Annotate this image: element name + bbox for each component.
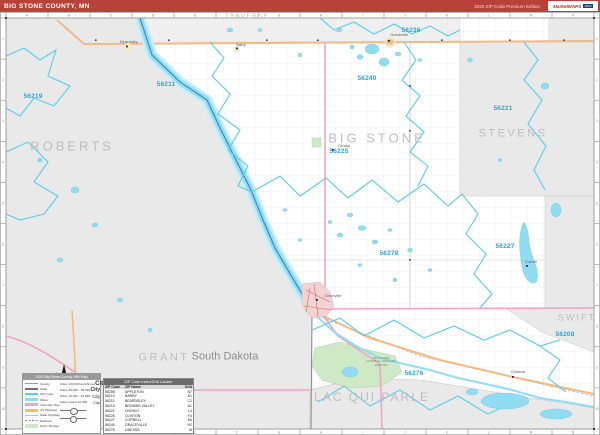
grid-ref-label: L — [488, 13, 490, 17]
legend-swatch — [25, 424, 38, 428]
zip-label: 56276 — [404, 371, 423, 378]
county-label: TRAVERSE — [225, 14, 269, 20]
grid-ref-label: E — [194, 13, 196, 17]
us-highway-sample-row — [60, 407, 100, 413]
grid-ref-label: D — [152, 13, 155, 17]
brand-badge: 2020 — [583, 4, 593, 8]
legend-swatch — [25, 393, 38, 395]
zip-label: 56278 — [379, 251, 398, 258]
grid-ref-label: K — [446, 431, 449, 435]
town-label: Odessa — [511, 370, 525, 374]
grid-ref-label: 4 — [2, 160, 4, 164]
grid-ref-label: 3 — [2, 119, 4, 123]
legend-label: Interstate Hwy — [40, 403, 60, 407]
zip-label: 56211 — [157, 82, 176, 89]
edition-label: 2020 ZIP Code Premium Edition — [474, 4, 540, 9]
legend-city-label: Cities 100,000 and Above — [60, 382, 95, 386]
county-label: ROBERTS — [30, 140, 114, 153]
grid-ref-label: F — [236, 431, 238, 435]
park-area — [312, 138, 321, 147]
town-label: Ortonville — [325, 294, 342, 298]
refuge-label: BIG STONE NATIONAL WILDLIFE REFUGE — [366, 357, 396, 367]
legend-city-sample: City — [93, 400, 100, 405]
legend-shield-samples — [60, 407, 100, 421]
state-highway-sample-row — [60, 415, 100, 421]
county-label: LAC QUI PARLE — [314, 391, 430, 403]
grid-ref-label: L — [488, 431, 490, 435]
zip-table-body: 56208APPLETONN756210BARRYE156211BEARDSLE… — [104, 389, 193, 434]
grid-ref-label: C — [110, 13, 113, 17]
grid-ref-label: A — [26, 13, 29, 17]
county-label: GRANT — [139, 353, 190, 364]
brand-logo: MarketMAPS 2020 — [548, 1, 598, 11]
legend-box: 2020 Big Stone County, MN Map CountyStat… — [22, 373, 101, 434]
grid-ref-label: N — [572, 13, 575, 17]
zip-label: 56240 — [357, 76, 376, 83]
grid-ref-label: 6 — [596, 243, 598, 247]
grid-ref-label: B — [68, 13, 70, 17]
legend-swatch — [25, 409, 38, 412]
town-label: Barry — [236, 43, 246, 47]
grid-ref-label: 8 — [596, 325, 598, 329]
legend-city-sample: City — [91, 387, 100, 393]
grid-ref-label: 2 — [2, 78, 4, 82]
grid-ref-label: I — [363, 13, 364, 17]
graceville-urban-area — [386, 39, 394, 45]
grid-ref-label: H — [320, 13, 323, 17]
state-highway-shield-icon — [70, 416, 77, 423]
town-tint — [124, 43, 132, 51]
grid-ref-label: 8 — [2, 325, 4, 329]
zip-code: 56278 — [104, 432, 124, 434]
legend-label: Water — [40, 398, 48, 402]
grid-ref-label: E — [194, 431, 196, 435]
legend-body: CountyStateZIP CodeWaterInterstate HwyUS… — [23, 380, 100, 430]
town-label: Graceville — [390, 33, 408, 37]
grid-ref-label: 6 — [2, 243, 4, 247]
grid-ref-label: H — [320, 431, 323, 435]
zip-table-row: 56278ORTONVILLEE7 — [104, 432, 193, 434]
zip-name: ORTONVILLE — [124, 432, 178, 434]
zip-index-table: ZIP Code Index/Grid Locator ZIP CodeZIP … — [103, 378, 194, 434]
legend-city-label: Cities 25,000 - 99,999 — [60, 388, 90, 392]
town-label: Beardsley — [120, 40, 138, 44]
grid-ref-label: 5 — [596, 201, 598, 205]
zip-label: 56208 — [555, 332, 574, 339]
brand-name: MarketMAPS — [553, 4, 581, 9]
county-label: STEVENS — [479, 129, 548, 140]
grid-ref-label: 2 — [596, 78, 598, 82]
grid-ref-label: 9 — [596, 366, 598, 370]
legend-swatch — [25, 388, 38, 390]
map-page: AABBCCDDEEFFGGHHIIJJKKLLMMNN112233445566… — [0, 0, 600, 435]
legend-lines-column: CountyStateZIP CodeWaterInterstate HwyUS… — [25, 381, 58, 429]
grid-ref-label: G — [278, 13, 281, 17]
town-label: Clinton — [338, 144, 350, 148]
grid-ref: E7 — [178, 432, 193, 434]
legend-swatch — [25, 420, 38, 421]
map-title: BIG STONE COUNTY, MN — [4, 3, 90, 10]
grid-ref-label: 7 — [596, 284, 598, 288]
legend-label: Railroad — [40, 419, 52, 423]
zip-label: 56227 — [495, 244, 514, 251]
legend-swatch — [25, 383, 38, 385]
town-label: Correll — [525, 260, 537, 264]
grid-ref-label: N — [572, 431, 575, 435]
legend-city-label: Cities 10,000 - 24,999 — [60, 394, 90, 398]
grid-ref-label: 7 — [2, 284, 4, 288]
state-label: South Dakota — [192, 352, 259, 363]
grid-ref-label: J — [404, 431, 406, 435]
grid-ref-label: G — [278, 431, 281, 435]
legend-right-column: Cities 100,000 and AboveCityCities 25,00… — [60, 381, 100, 429]
grid-ref-label: 9 — [2, 366, 4, 370]
zip-label: 56225 — [329, 149, 348, 156]
legend-label: State Highway — [40, 413, 60, 417]
grid-ref-label: I — [363, 431, 364, 435]
grid-ref-label: 4 — [596, 160, 598, 164]
legend-city-sample: City — [92, 394, 100, 399]
legend-city-item: Cities Under 10,000City — [60, 399, 100, 405]
legend-swatch — [25, 415, 38, 417]
legend-cities-column: Cities 100,000 and AboveCityCities 25,00… — [60, 381, 100, 405]
legend-label: US Highway — [40, 408, 57, 412]
grid-ref-label: M — [530, 13, 533, 17]
grid-ref-label: 1 — [596, 37, 598, 41]
grid-ref-label: J — [404, 13, 406, 17]
zip-label: 56219 — [23, 94, 42, 101]
zip-label: 56221 — [493, 106, 512, 113]
legend-label: ZIP Code — [40, 392, 53, 396]
us-highway-shield-icon — [70, 408, 78, 415]
legend-label: County — [40, 382, 50, 386]
grid-ref-label: 1 — [2, 37, 4, 41]
grid-ref-label: 3 — [596, 119, 598, 123]
grid-ref-label: 10 — [595, 407, 599, 411]
county-label: SWIFT — [558, 314, 596, 323]
legend-label: Park / Refuge — [40, 424, 59, 428]
legend-city-label: Cities Under 10,000 — [60, 400, 87, 404]
grid-ref-label: 5 — [2, 201, 4, 205]
map-canvas: AABBCCDDEEFFGGHHIIJJKKLLMMNN112233445566… — [0, 0, 600, 435]
grid-ref-label: 10 — [1, 407, 5, 411]
state-highway — [310, 308, 594, 309]
legend-item: Park / Refuge — [25, 423, 58, 428]
legend-swatch — [25, 398, 38, 401]
legend-swatch — [25, 403, 38, 406]
grid-ref-label: K — [446, 13, 449, 17]
grid-ref-label: M — [530, 431, 533, 435]
title-bar: BIG STONE COUNTY, MN 2020 ZIP Code Premi… — [0, 0, 600, 12]
legend-label: State — [40, 387, 47, 391]
